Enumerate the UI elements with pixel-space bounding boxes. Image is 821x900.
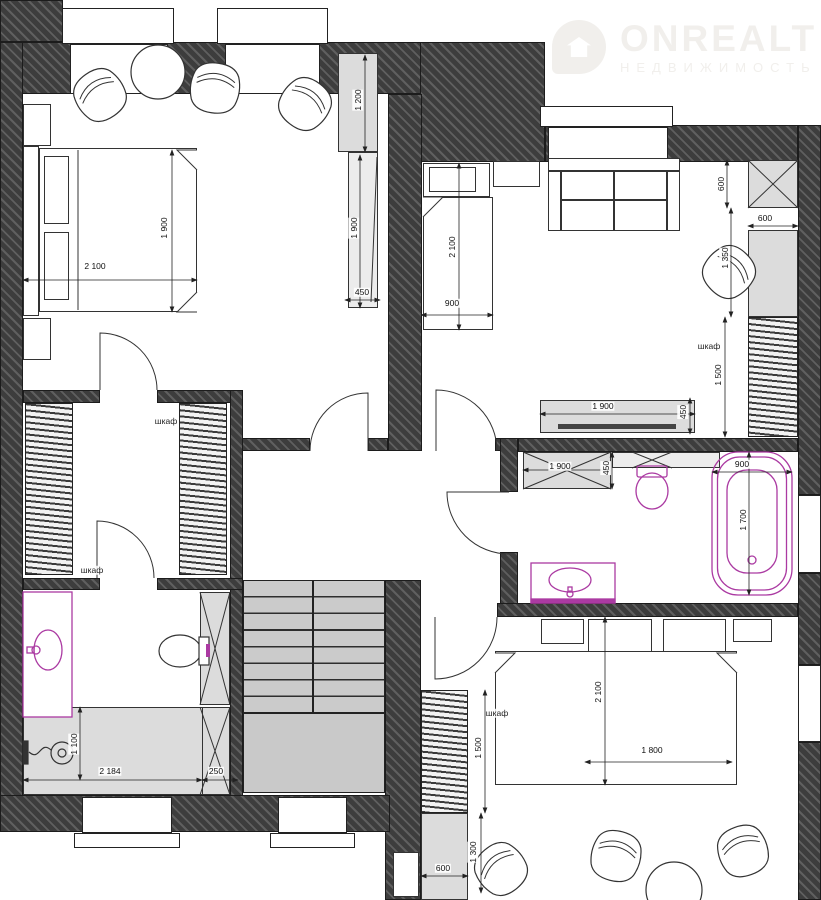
plan-annotations bbox=[0, 0, 821, 900]
armchair bbox=[270, 69, 339, 139]
dim-label: 900 bbox=[734, 460, 750, 469]
dim-label: 450 bbox=[601, 461, 612, 475]
dim-label: 900 bbox=[444, 299, 460, 308]
vanity bbox=[23, 592, 72, 717]
dim-label: 600 bbox=[716, 177, 727, 191]
door-childrens-room bbox=[436, 390, 497, 451]
vanity bbox=[531, 563, 615, 603]
dim-label: 250 bbox=[208, 767, 224, 776]
cross-marks bbox=[200, 160, 798, 795]
dim-label: 450 bbox=[678, 405, 689, 419]
door-swings bbox=[97, 333, 509, 679]
dimension-lines bbox=[23, 55, 798, 893]
wardrobe-label: шкаф bbox=[486, 709, 508, 718]
sanitary-fixtures bbox=[23, 452, 792, 717]
dim-label: 2 100 bbox=[593, 681, 604, 702]
dim-label: 2 100 bbox=[83, 262, 106, 271]
toilet bbox=[159, 635, 201, 667]
dim-label: 1 500 bbox=[473, 737, 484, 758]
dim-label: 1 200 bbox=[353, 89, 364, 110]
tv bbox=[558, 424, 676, 429]
dim-label: 600 bbox=[757, 214, 773, 223]
dim-label: 1 900 bbox=[159, 217, 170, 238]
dim-label: 1 900 bbox=[591, 402, 614, 411]
armchair bbox=[586, 826, 646, 887]
toilet bbox=[637, 466, 667, 477]
dim-label: 2 184 bbox=[98, 767, 121, 776]
dim-label: 1 700 bbox=[738, 509, 749, 530]
door-bedroom1 bbox=[310, 393, 368, 451]
round-table bbox=[646, 862, 702, 900]
dim-label: 1 100 bbox=[69, 733, 80, 754]
dim-label: 1 900 bbox=[349, 217, 360, 238]
armchair bbox=[66, 60, 135, 129]
dim-label: 1 500 bbox=[713, 364, 724, 385]
dim-label: 2 100 bbox=[447, 236, 458, 257]
dim-label: 1 350 bbox=[720, 247, 731, 268]
armchair bbox=[711, 819, 774, 883]
wardrobe-label: шкаф bbox=[81, 566, 103, 575]
furniture-details bbox=[78, 150, 737, 673]
dim-label: 1 900 bbox=[548, 462, 571, 471]
floor-plan: ONREALT НЕДВИЖИМОСТЬ bbox=[0, 0, 821, 900]
wardrobe-label: шкаф bbox=[698, 342, 720, 351]
dim-label: 600 bbox=[435, 864, 451, 873]
dim-label: 450 bbox=[354, 288, 370, 297]
door-bathroom bbox=[447, 492, 509, 554]
dim-label: 1 300 bbox=[468, 841, 479, 862]
dim-label: 1 800 bbox=[640, 746, 663, 755]
door-bedroom2 bbox=[435, 617, 497, 679]
wardrobe-label: шкаф bbox=[155, 417, 177, 426]
door-closet-bottom bbox=[97, 521, 154, 578]
round-table bbox=[131, 45, 185, 99]
armchair bbox=[187, 60, 242, 116]
door-closet-top bbox=[100, 333, 157, 390]
